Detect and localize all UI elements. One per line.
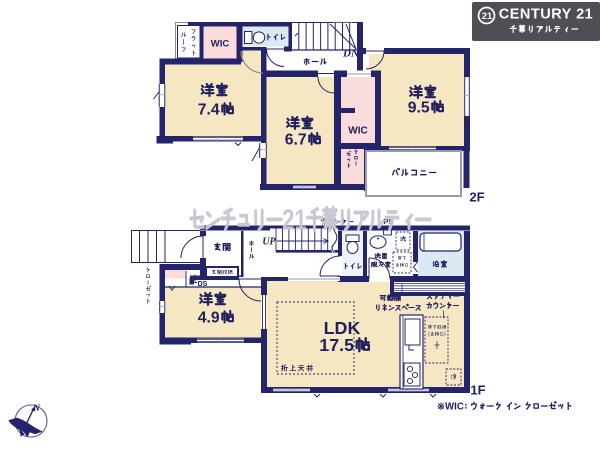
- svg-text:WIC: WIC: [348, 126, 367, 137]
- svg-text:4.9: 4.9: [198, 309, 220, 326]
- svg-text:1F: 1F: [470, 383, 485, 398]
- svg-text:CENTURY 21: CENTURY 21: [499, 7, 593, 23]
- svg-text:DN: DN: [342, 47, 360, 59]
- svg-text:DS: DS: [198, 281, 208, 288]
- svg-text:21: 21: [482, 11, 493, 22]
- svg-text:N: N: [32, 404, 41, 414]
- svg-text:※WIC: ※WIC: [437, 401, 464, 412]
- svg-text:WIC: WIC: [211, 38, 230, 49]
- svg-text:17.5: 17.5: [319, 335, 354, 355]
- svg-text:6.7: 6.7: [285, 131, 307, 148]
- svg-text:UP: UP: [262, 237, 276, 248]
- svg-text:7.4: 7.4: [198, 101, 220, 118]
- svg-text:9.5: 9.5: [408, 99, 430, 116]
- svg-text:21: 21: [282, 205, 307, 237]
- svg-text:2F: 2F: [469, 190, 484, 205]
